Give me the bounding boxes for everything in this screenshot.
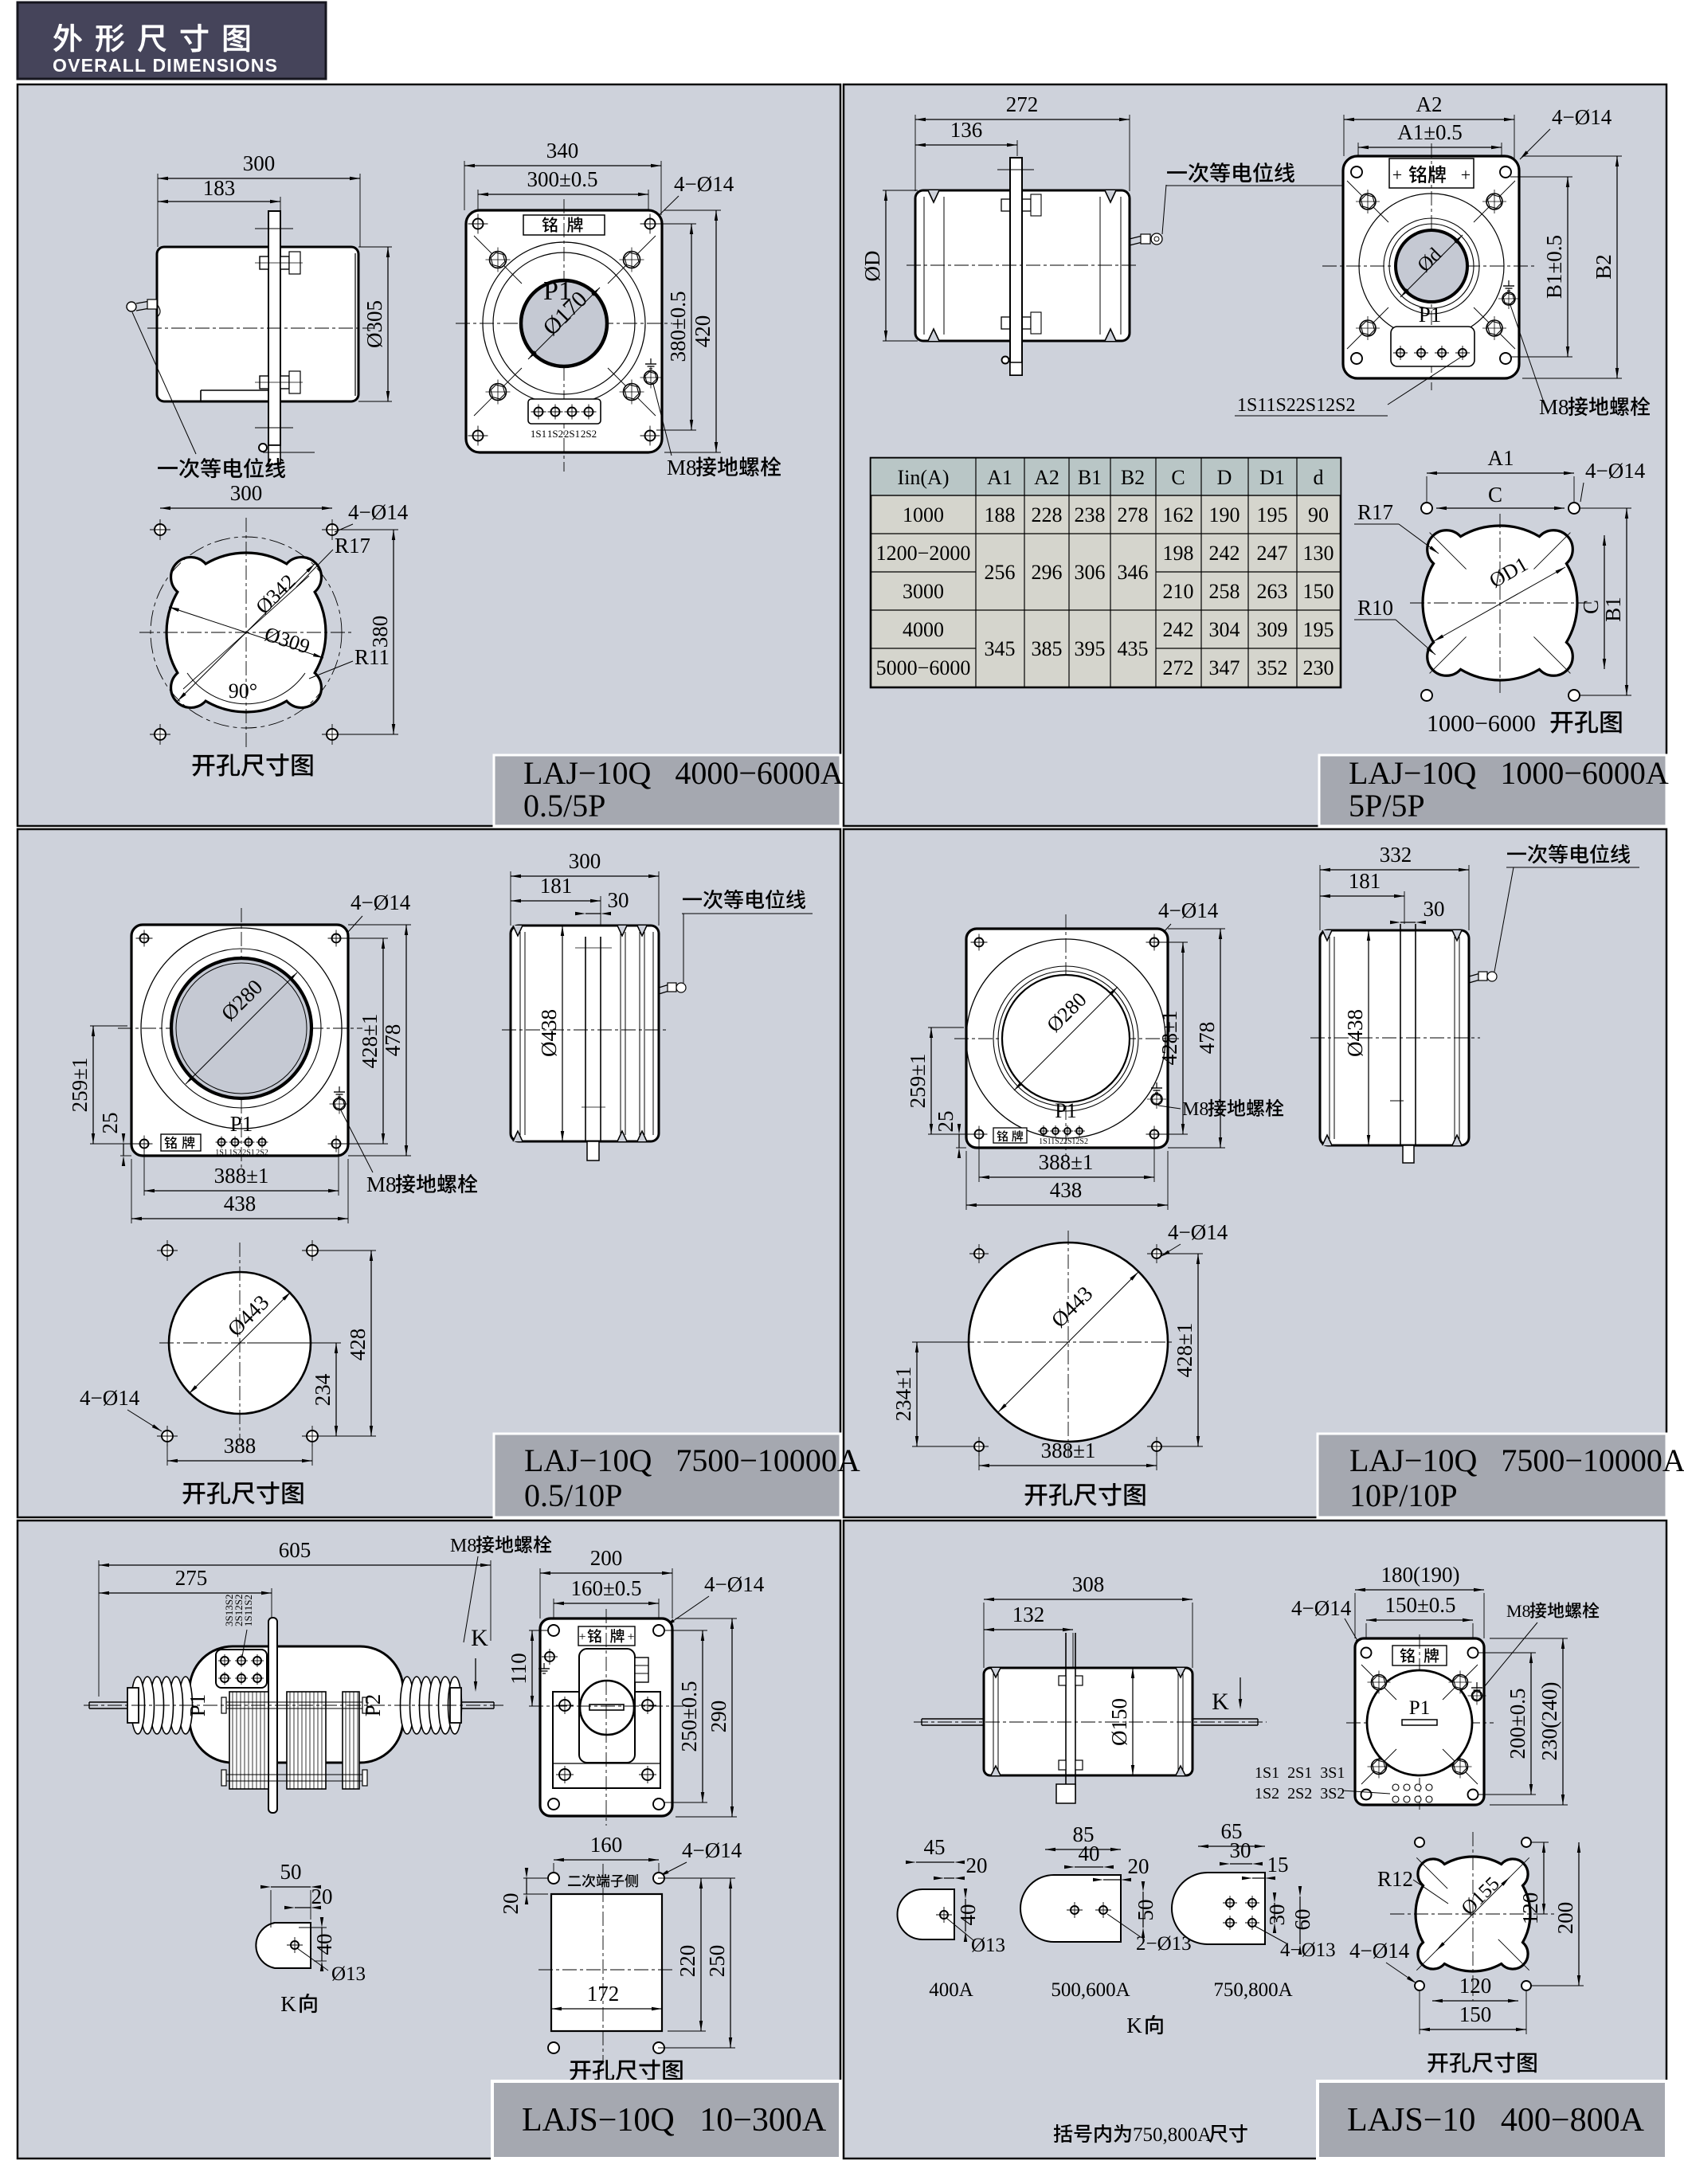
svg-text:210: 210 (1163, 580, 1194, 603)
svg-text:P1: P1 (230, 1112, 253, 1136)
svg-text:50: 50 (1134, 1900, 1157, 1921)
svg-text:LAJ−10Q 1000−6000A: LAJ−10Q 1000−6000A (1349, 755, 1669, 791)
svg-text:K: K (1212, 1689, 1229, 1715)
svg-text:Iin(A): Iin(A) (898, 466, 950, 489)
svg-text:347: 347 (1209, 656, 1240, 679)
svg-text:198: 198 (1163, 542, 1194, 565)
svg-text:M8: M8 (667, 456, 697, 479)
svg-text:438: 438 (1050, 1178, 1083, 1202)
svg-text:1S2 2S2 3S2: 1S2 2S2 3S2 (1255, 1785, 1345, 1802)
svg-text:181: 181 (540, 874, 573, 898)
svg-text:136: 136 (950, 118, 983, 142)
svg-text:2S2: 2S2 (581, 428, 597, 440)
svg-text:+: + (578, 1630, 585, 1644)
svg-text:20: 20 (1128, 1854, 1149, 1878)
svg-text:d: d (1314, 466, 1324, 489)
svg-text:132: 132 (1012, 1603, 1045, 1626)
svg-text:A2: A2 (1416, 92, 1443, 116)
svg-text:200: 200 (590, 1546, 623, 1570)
svg-text:250±0.5: 250±0.5 (677, 1681, 701, 1752)
svg-text:40: 40 (956, 1904, 980, 1926)
svg-text:40: 40 (1079, 1842, 1100, 1865)
svg-text:OVERALL DIMENSIONS: OVERALL DIMENSIONS (53, 55, 278, 76)
svg-text:LAJS−10Q 10−300A: LAJS−10Q 10−300A (522, 2102, 827, 2139)
svg-text:160: 160 (590, 1833, 623, 1857)
svg-text:5000−6000: 5000−6000 (876, 656, 971, 679)
svg-text:4−Ø14: 4−Ø14 (348, 500, 409, 524)
svg-text:30: 30 (1230, 1838, 1251, 1862)
svg-text:1S11S22S12S2: 1S11S22S12S2 (1237, 395, 1356, 416)
svg-text:Ø305: Ø305 (362, 300, 386, 348)
svg-text:3000: 3000 (903, 580, 944, 603)
svg-text:M8: M8 (366, 1172, 397, 1196)
svg-text:Ø438: Ø438 (1343, 1009, 1367, 1057)
svg-text:1S11S2: 1S11S2 (242, 1595, 254, 1626)
svg-text:Ø13: Ø13 (971, 1935, 1005, 1956)
svg-text:130: 130 (1303, 542, 1334, 565)
svg-text:2S1: 2S1 (242, 1149, 255, 1157)
svg-text:500,600A: 500,600A (1051, 1979, 1130, 2001)
svg-text:A1±0.5: A1±0.5 (1397, 120, 1463, 144)
svg-text:K: K (1126, 2014, 1142, 2037)
svg-text:20: 20 (311, 1885, 333, 1908)
svg-text:300: 300 (569, 849, 601, 873)
svg-text:188: 188 (985, 503, 1016, 526)
svg-text:R12: R12 (1377, 1867, 1413, 1891)
svg-text:20: 20 (966, 1853, 988, 1877)
svg-text:230: 230 (1303, 656, 1334, 679)
svg-text:A1: A1 (1488, 446, 1514, 470)
svg-text:183: 183 (203, 176, 236, 200)
svg-text:478: 478 (1195, 1022, 1219, 1055)
svg-text:308: 308 (1072, 1572, 1105, 1596)
svg-text:395: 395 (1075, 637, 1106, 660)
svg-text:Ø13: Ø13 (331, 1963, 366, 1985)
svg-text:181: 181 (1349, 869, 1381, 893)
svg-text:P1: P1 (1055, 1099, 1076, 1122)
svg-text:478: 478 (381, 1024, 405, 1057)
svg-text:90°: 90° (229, 679, 257, 703)
svg-text:242: 242 (1163, 618, 1194, 641)
svg-text:20: 20 (499, 1893, 523, 1915)
svg-text:272: 272 (1006, 92, 1039, 116)
svg-text:230(240): 230(240) (1537, 1682, 1561, 1761)
svg-text:352: 352 (1257, 656, 1288, 679)
svg-text:380: 380 (368, 616, 392, 648)
svg-text:K: K (280, 1992, 296, 2016)
svg-text:B2: B2 (1592, 254, 1615, 280)
svg-text:388±1: 388±1 (1039, 1150, 1094, 1174)
svg-text:272: 272 (1163, 656, 1194, 679)
svg-text:278: 278 (1118, 503, 1149, 526)
svg-text:300: 300 (243, 151, 276, 175)
svg-text:A1: A1 (987, 466, 1012, 489)
svg-text:4−Ø14: 4−Ø14 (1291, 1596, 1352, 1620)
svg-text:605: 605 (279, 1538, 311, 1562)
svg-text:428±1: 428±1 (1157, 1011, 1181, 1066)
svg-text:M8: M8 (1539, 395, 1569, 419)
svg-text:1S2: 1S2 (229, 1149, 241, 1157)
svg-text:120: 120 (1459, 1974, 1492, 1998)
svg-text:1S11S22S12S2: 1S11S22S12S2 (1039, 1137, 1088, 1146)
svg-text:256: 256 (985, 561, 1016, 584)
svg-text:385: 385 (1032, 637, 1063, 660)
svg-text:D1: D1 (1259, 466, 1285, 489)
svg-text:296: 296 (1032, 561, 1063, 584)
svg-text:220: 220 (676, 1945, 699, 1978)
svg-text:M8: M8 (1182, 1099, 1208, 1120)
svg-text:B2: B2 (1121, 466, 1145, 489)
svg-text:+: + (1461, 165, 1471, 185)
svg-text:1200−2000: 1200−2000 (876, 542, 971, 565)
svg-text:750,800A: 750,800A (1213, 1979, 1292, 2001)
svg-text:380±0.5: 380±0.5 (666, 291, 690, 362)
svg-text:1S2: 1S2 (547, 428, 563, 440)
svg-text:346: 346 (1118, 561, 1149, 584)
svg-text:263: 263 (1257, 580, 1288, 603)
svg-text:1S1: 1S1 (531, 428, 546, 440)
svg-text:258: 258 (1209, 580, 1240, 603)
svg-text:1S1: 1S1 (215, 1149, 228, 1157)
svg-text:234: 234 (311, 1373, 335, 1406)
svg-text:P1: P1 (1409, 1697, 1430, 1719)
svg-text:275: 275 (175, 1566, 208, 1590)
svg-text:180(190): 180(190) (1381, 1563, 1460, 1587)
svg-text:345: 345 (985, 637, 1016, 660)
svg-text:40: 40 (312, 1934, 336, 1955)
svg-text:+: + (1392, 165, 1402, 185)
svg-text:172: 172 (587, 1982, 620, 2006)
svg-text:B1±0.5: B1±0.5 (1542, 235, 1566, 299)
svg-text:K: K (471, 1625, 488, 1651)
svg-text:400A: 400A (929, 1979, 973, 2001)
svg-text:250: 250 (705, 1945, 729, 1978)
svg-text:150±0.5: 150±0.5 (1384, 1593, 1455, 1617)
svg-text:ØD: ØD (860, 251, 884, 282)
svg-text:428±1: 428±1 (1173, 1323, 1196, 1378)
svg-text:1000−6000: 1000−6000 (1427, 710, 1536, 737)
svg-text:388±1: 388±1 (1041, 1438, 1096, 1462)
svg-text:5P/5P: 5P/5P (1349, 788, 1425, 824)
svg-text:4−Ø13: 4−Ø13 (1280, 1939, 1336, 1961)
svg-text:4−Ø14: 4−Ø14 (1585, 459, 1646, 483)
svg-text:R10: R10 (1357, 596, 1393, 620)
svg-text:50: 50 (280, 1860, 302, 1884)
svg-text:388: 388 (224, 1434, 257, 1458)
svg-text:110: 110 (507, 1653, 531, 1685)
svg-text:R11: R11 (354, 645, 390, 669)
svg-text:4−Ø14: 4−Ø14 (704, 1572, 765, 1596)
svg-text:M8: M8 (450, 1536, 476, 1556)
svg-text:0.5/5P: 0.5/5P (523, 788, 605, 824)
svg-text:2S2: 2S2 (256, 1149, 268, 1157)
svg-text:388±1: 388±1 (214, 1164, 269, 1188)
svg-text:LAJ−10Q 7500−10000A: LAJ−10Q 7500−10000A (524, 1442, 860, 1478)
svg-text:438: 438 (224, 1192, 257, 1215)
svg-text:242: 242 (1209, 542, 1240, 565)
svg-text:300: 300 (230, 481, 263, 505)
svg-text:228: 228 (1032, 503, 1063, 526)
svg-text:45: 45 (924, 1835, 946, 1859)
svg-text:10P/10P: 10P/10P (1349, 1478, 1458, 1513)
svg-text:195: 195 (1303, 618, 1334, 641)
svg-text:332: 332 (1380, 843, 1412, 867)
svg-text:0.5/10P: 0.5/10P (524, 1478, 622, 1513)
svg-text:420: 420 (691, 315, 715, 348)
svg-text:162: 162 (1163, 503, 1194, 526)
svg-text:R17: R17 (1357, 500, 1393, 524)
svg-text:2S1: 2S1 (564, 428, 580, 440)
svg-text:247: 247 (1257, 542, 1288, 565)
svg-text:B1: B1 (1078, 466, 1102, 489)
svg-text:1000: 1000 (903, 503, 944, 526)
svg-text:150: 150 (1459, 2002, 1492, 2026)
svg-text:Ø438: Ø438 (537, 1009, 561, 1057)
svg-text:428: 428 (346, 1329, 370, 1361)
svg-text:195: 195 (1257, 503, 1288, 526)
svg-text:435: 435 (1118, 637, 1149, 660)
svg-text:340: 340 (546, 139, 579, 162)
svg-text:R17: R17 (335, 534, 370, 558)
svg-text:15: 15 (1267, 1853, 1289, 1877)
svg-text:4−Ø14: 4−Ø14 (1349, 1939, 1410, 1963)
svg-text:C: C (1488, 483, 1502, 507)
svg-text:25: 25 (98, 1113, 122, 1134)
svg-text:190: 190 (1209, 503, 1240, 526)
svg-text:1S1 2S1 3S1: 1S1 2S1 3S1 (1255, 1764, 1345, 1782)
svg-text:D: D (1217, 466, 1232, 489)
svg-text:304: 304 (1209, 618, 1240, 641)
svg-text:238: 238 (1075, 503, 1106, 526)
svg-text:150: 150 (1303, 580, 1334, 603)
svg-text:90: 90 (1308, 503, 1329, 526)
svg-text:428±1: 428±1 (358, 1014, 382, 1069)
svg-text:LAJS−10 400−800A: LAJS−10 400−800A (1347, 2102, 1645, 2139)
svg-text:+: + (627, 1630, 634, 1644)
svg-text:160±0.5: 160±0.5 (570, 1576, 641, 1600)
svg-text:P1: P1 (1419, 303, 1442, 327)
svg-text:120: 120 (1518, 1892, 1542, 1925)
svg-text:C: C (1171, 466, 1185, 489)
svg-text:4−Ø14: 4−Ø14 (351, 890, 411, 914)
svg-text:LAJ−10Q 4000−6000A: LAJ−10Q 4000−6000A (523, 755, 844, 791)
svg-text:2−Ø13: 2−Ø13 (1136, 1933, 1192, 1955)
svg-text:200±0.5: 200±0.5 (1506, 1688, 1529, 1759)
svg-text:4000: 4000 (903, 618, 944, 641)
svg-text:30: 30 (608, 888, 629, 912)
svg-text:C: C (1579, 600, 1603, 614)
svg-text:259±1: 259±1 (68, 1058, 92, 1113)
svg-text:4−Ø14: 4−Ø14 (1158, 898, 1219, 922)
svg-text:290: 290 (707, 1701, 730, 1733)
svg-text:B1: B1 (1601, 597, 1625, 622)
svg-text:M8: M8 (1506, 1601, 1531, 1621)
svg-text:4−Ø14: 4−Ø14 (80, 1386, 140, 1410)
svg-text:A2: A2 (1034, 466, 1059, 489)
svg-text:259±1: 259±1 (906, 1054, 930, 1109)
svg-text:4−Ø14: 4−Ø14 (1552, 105, 1612, 129)
svg-text:25: 25 (934, 1111, 958, 1133)
svg-text:LAJ−10Q 7500−10000A: LAJ−10Q 7500−10000A (1349, 1442, 1684, 1478)
svg-text:4−Ø14: 4−Ø14 (682, 1838, 742, 1862)
svg-text:234±1: 234±1 (891, 1367, 915, 1422)
svg-text:200: 200 (1553, 1902, 1577, 1935)
svg-text:30: 30 (1424, 897, 1445, 921)
svg-text:4−Ø14: 4−Ø14 (674, 172, 734, 196)
svg-text:30: 30 (1265, 1904, 1289, 1926)
svg-text:306: 306 (1075, 561, 1106, 584)
svg-text:309: 309 (1257, 618, 1288, 641)
svg-text:4−Ø14: 4−Ø14 (1168, 1220, 1228, 1244)
svg-text:60: 60 (1290, 1909, 1314, 1931)
svg-text:300±0.5: 300±0.5 (527, 167, 597, 191)
svg-text:750,800A: 750,800A (1133, 2124, 1212, 2146)
